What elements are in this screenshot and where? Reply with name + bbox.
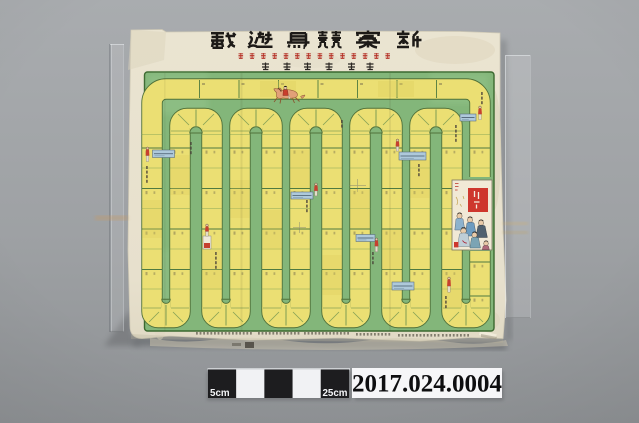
svg-text:5cm: 5cm (210, 388, 230, 399)
svg-text:25cm: 25cm (322, 388, 347, 399)
svg-text:2017.024.0004: 2017.024.0004 (352, 371, 503, 398)
